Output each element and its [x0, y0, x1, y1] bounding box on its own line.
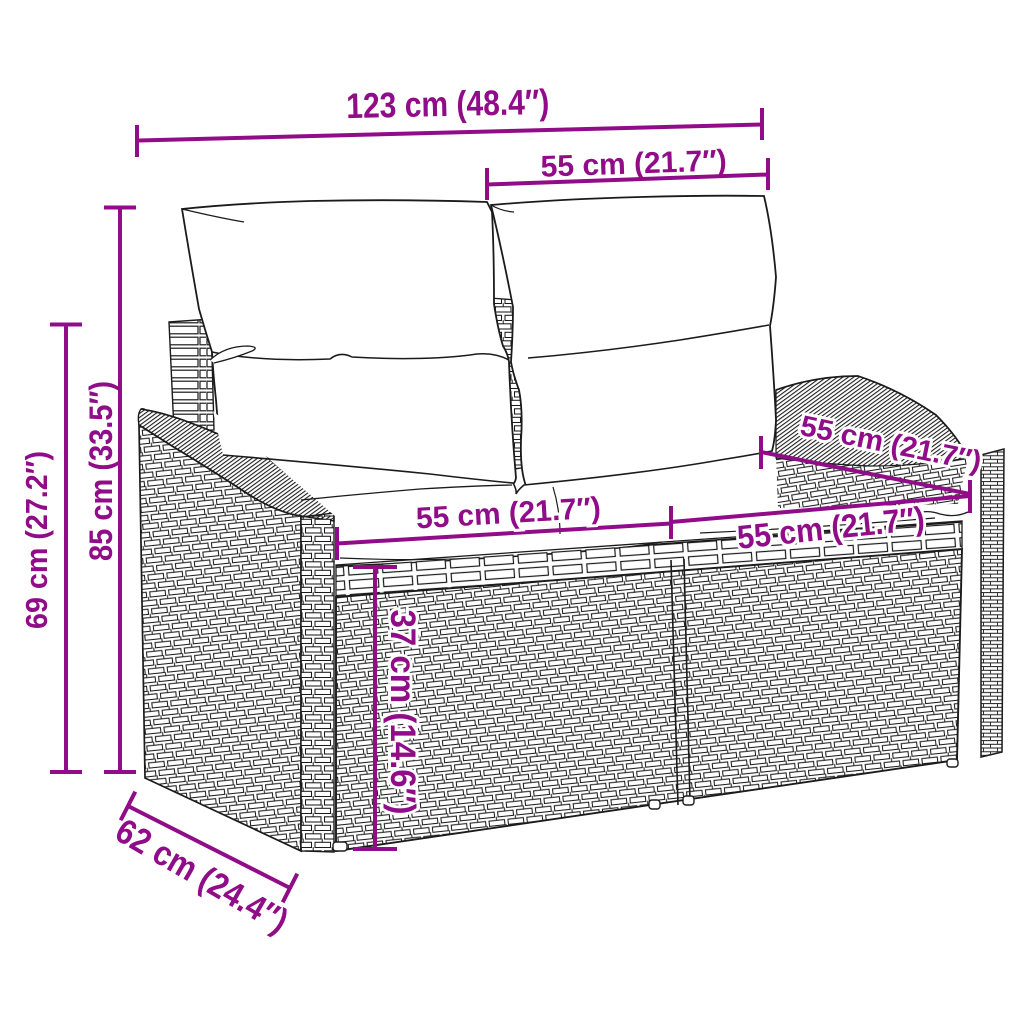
svg-text:55 cm (21.7″): 55 cm (21.7″)	[540, 144, 727, 183]
svg-text:123 cm (48.4″): 123 cm (48.4″)	[346, 82, 550, 126]
svg-text:37 cm (14.6″): 37 cm (14.6″)	[383, 610, 422, 815]
svg-text:69 cm (27.2″): 69 cm (27.2″)	[19, 451, 54, 629]
svg-text:85 cm (33.5″): 85 cm (33.5″)	[83, 381, 119, 561]
